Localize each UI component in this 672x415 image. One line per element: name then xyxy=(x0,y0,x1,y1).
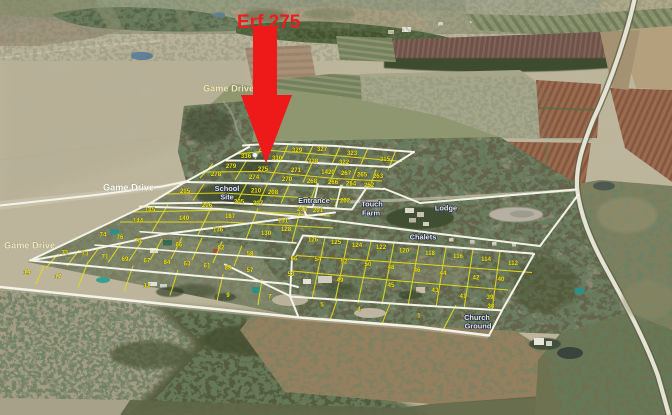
svg-text:144: 144 xyxy=(133,218,144,225)
svg-text:30: 30 xyxy=(488,303,495,310)
svg-text:54: 54 xyxy=(315,256,322,263)
svg-text:1: 1 xyxy=(417,313,421,320)
svg-text:266: 266 xyxy=(328,179,339,186)
svg-text:271: 271 xyxy=(291,167,302,174)
svg-text:71: 71 xyxy=(102,254,109,261)
svg-text:67: 67 xyxy=(144,258,151,265)
svg-text:70: 70 xyxy=(135,238,142,245)
svg-text:328: 328 xyxy=(308,158,319,165)
svg-text:88: 88 xyxy=(225,265,232,272)
svg-text:75: 75 xyxy=(62,250,69,257)
svg-text:268: 268 xyxy=(307,178,318,185)
svg-text:126: 126 xyxy=(308,237,319,244)
svg-text:41: 41 xyxy=(460,293,467,300)
svg-text:124: 124 xyxy=(352,242,363,249)
svg-text:50: 50 xyxy=(365,261,372,268)
svg-text:125: 125 xyxy=(331,239,342,246)
svg-text:202: 202 xyxy=(340,198,351,205)
svg-text:201: 201 xyxy=(313,207,324,214)
svg-text:330: 330 xyxy=(272,155,283,162)
svg-text:Chalets: Chalets xyxy=(410,233,437,242)
svg-text:40: 40 xyxy=(498,276,505,283)
svg-text:7: 7 xyxy=(268,294,272,301)
svg-text:203: 203 xyxy=(297,206,308,213)
svg-text:267: 267 xyxy=(341,170,352,177)
svg-text:205: 205 xyxy=(234,199,245,206)
svg-text:329: 329 xyxy=(292,147,303,154)
svg-text:1420: 1420 xyxy=(321,169,335,176)
svg-text:19: 19 xyxy=(24,270,31,277)
svg-text:140: 140 xyxy=(179,215,190,222)
svg-text:210: 210 xyxy=(251,188,262,195)
svg-text:270: 270 xyxy=(282,176,293,183)
svg-text:145: 145 xyxy=(145,207,156,214)
svg-text:131: 131 xyxy=(278,218,289,225)
svg-text:Game Drive: Game Drive xyxy=(203,84,254,94)
svg-text:5: 5 xyxy=(320,302,324,309)
svg-text:Game Drive: Game Drive xyxy=(4,241,55,251)
svg-text:58: 58 xyxy=(247,251,254,258)
svg-text:76: 76 xyxy=(117,234,124,241)
svg-text:17: 17 xyxy=(55,274,62,281)
svg-text:53: 53 xyxy=(288,271,295,278)
svg-text:57: 57 xyxy=(247,267,254,274)
svg-text:327: 327 xyxy=(317,146,328,153)
svg-text:208: 208 xyxy=(268,189,279,196)
svg-text:46: 46 xyxy=(414,267,421,274)
svg-text:Site: Site xyxy=(220,193,234,202)
svg-text:120: 120 xyxy=(399,248,410,255)
svg-text:84: 84 xyxy=(164,259,171,266)
svg-text:82: 82 xyxy=(218,245,225,252)
svg-text:49: 49 xyxy=(337,277,344,284)
svg-text:279: 279 xyxy=(226,163,237,170)
svg-text:187: 187 xyxy=(225,213,236,220)
svg-text:74: 74 xyxy=(100,232,107,239)
svg-text:52: 52 xyxy=(341,259,348,266)
svg-text:39: 39 xyxy=(487,294,494,301)
svg-text:63: 63 xyxy=(184,261,191,268)
svg-text:48: 48 xyxy=(388,264,395,271)
svg-text:Ground: Ground xyxy=(465,322,492,331)
svg-text:278: 278 xyxy=(211,171,222,178)
svg-text:Farm: Farm xyxy=(362,209,381,218)
svg-text:275: 275 xyxy=(258,166,269,173)
svg-text:336: 336 xyxy=(241,153,252,160)
svg-text:Game Drive: Game Drive xyxy=(103,183,154,193)
svg-text:45: 45 xyxy=(388,282,395,289)
svg-text:73: 73 xyxy=(82,251,89,258)
svg-text:Touch: Touch xyxy=(361,200,383,209)
svg-text:128: 128 xyxy=(281,226,292,233)
svg-text:274: 274 xyxy=(249,174,260,181)
svg-text:262: 262 xyxy=(364,182,375,189)
svg-text:263: 263 xyxy=(373,173,384,180)
svg-text:114: 114 xyxy=(481,256,492,263)
svg-text:Entrance: Entrance xyxy=(298,196,330,205)
svg-text:61: 61 xyxy=(204,263,211,270)
svg-text:136: 136 xyxy=(213,227,224,234)
svg-text:Lodge: Lodge xyxy=(435,204,457,213)
svg-text:130: 130 xyxy=(261,230,272,237)
svg-text:43: 43 xyxy=(432,287,439,294)
svg-text:207: 207 xyxy=(253,200,264,207)
svg-text:66: 66 xyxy=(176,242,183,249)
svg-text:44: 44 xyxy=(440,270,447,277)
svg-text:118: 118 xyxy=(425,250,436,257)
svg-text:315: 315 xyxy=(380,156,391,163)
svg-text:265: 265 xyxy=(357,172,368,179)
svg-text:12: 12 xyxy=(144,283,151,290)
svg-text:69: 69 xyxy=(122,256,129,263)
svg-text:254: 254 xyxy=(346,181,357,188)
svg-text:112: 112 xyxy=(508,260,519,267)
svg-text:206: 206 xyxy=(202,202,213,209)
svg-text:215: 215 xyxy=(180,188,191,195)
svg-text:116: 116 xyxy=(453,253,464,260)
svg-text:56: 56 xyxy=(291,256,298,263)
svg-text:42: 42 xyxy=(473,275,480,282)
svg-text:122: 122 xyxy=(376,244,387,251)
svg-text:9: 9 xyxy=(226,292,230,299)
svg-text:323: 323 xyxy=(347,150,358,157)
svg-text:4: 4 xyxy=(357,306,361,313)
svg-text:322: 322 xyxy=(339,159,350,166)
